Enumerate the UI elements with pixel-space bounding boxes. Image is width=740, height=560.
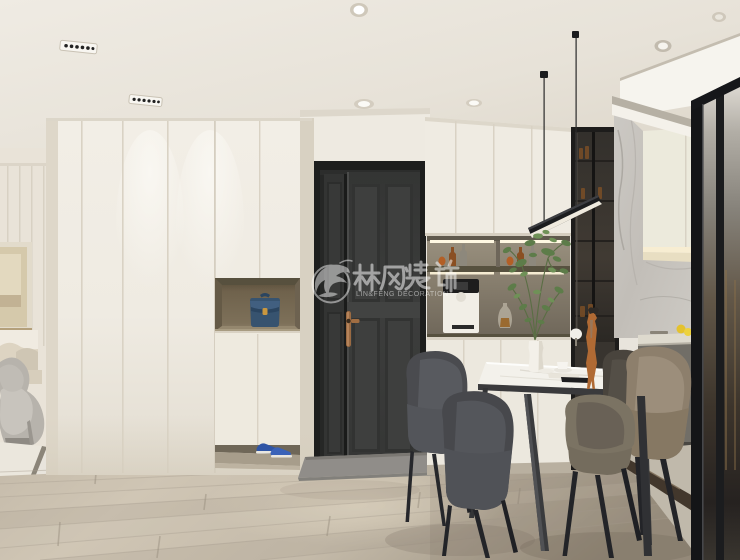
svg-text:LIN&FENG DECORATION: LIN&FENG DECORATION bbox=[356, 291, 449, 298]
